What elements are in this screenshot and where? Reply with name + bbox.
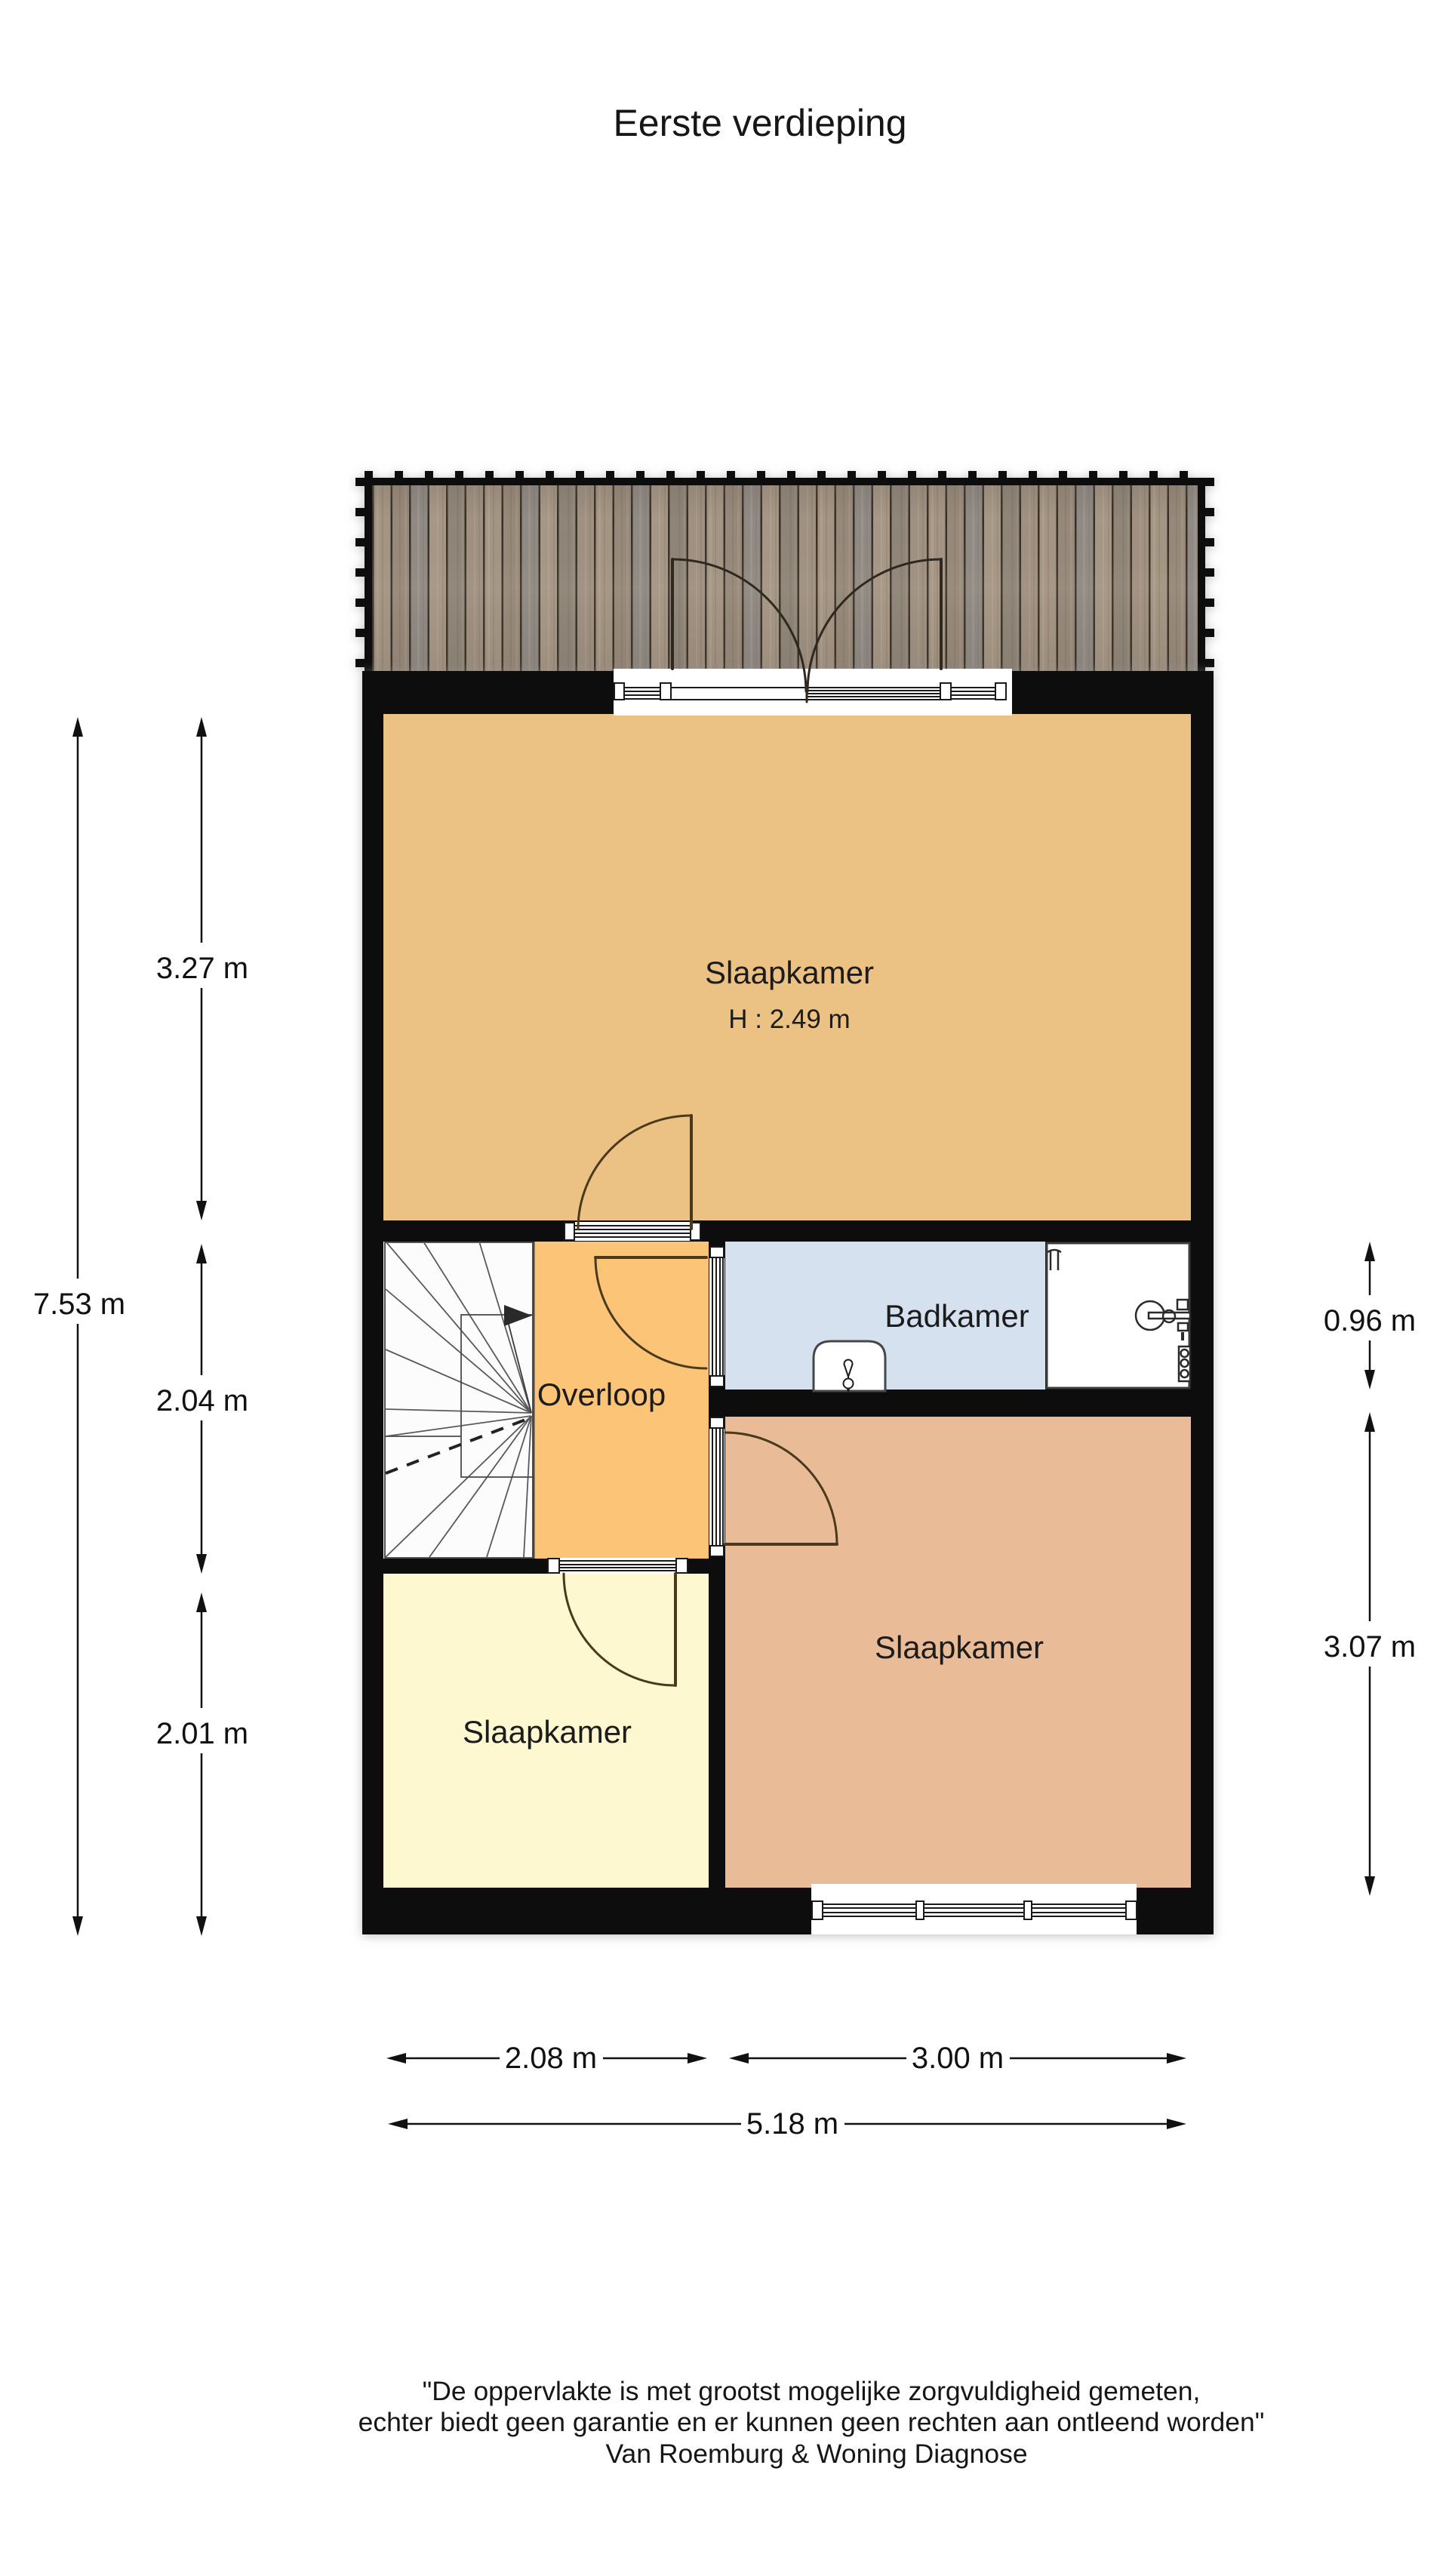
svg-text:3.27 m: 3.27 m <box>156 952 248 985</box>
svg-text:2.08 m: 2.08 m <box>505 2042 597 2075</box>
svg-text:5.18 m: 5.18 m <box>746 2107 838 2141</box>
svg-text:0.96 m: 0.96 m <box>1324 1304 1416 1337</box>
svg-text:"De oppervlakte is met grootst: "De oppervlakte is met grootst mogelijke… <box>423 2376 1201 2406</box>
svg-text:Slaapkamer: Slaapkamer <box>463 1714 632 1750</box>
svg-text:Eerste verdieping: Eerste verdieping <box>613 102 906 144</box>
svg-text:echter biedt geen garantie en: echter biedt geen garantie en er kunnen … <box>358 2407 1265 2437</box>
svg-text:Badkamer: Badkamer <box>884 1298 1029 1334</box>
svg-text:H : 2.49 m: H : 2.49 m <box>728 1005 850 1034</box>
svg-text:Slaapkamer: Slaapkamer <box>705 955 874 990</box>
svg-text:3.00 m: 3.00 m <box>912 2042 1004 2075</box>
svg-text:Slaapkamer: Slaapkamer <box>875 1630 1044 1665</box>
svg-text:Overloop: Overloop <box>537 1377 666 1412</box>
svg-text:3.07 m: 3.07 m <box>1324 1630 1416 1663</box>
svg-text:Van Roemburg & Woning Diagnose: Van Roemburg & Woning Diagnose <box>605 2439 1027 2469</box>
svg-text:2.04 m: 2.04 m <box>156 1384 248 1417</box>
svg-text:7.53 m: 7.53 m <box>33 1288 125 1321</box>
svg-text:2.01 m: 2.01 m <box>156 1717 248 1750</box>
